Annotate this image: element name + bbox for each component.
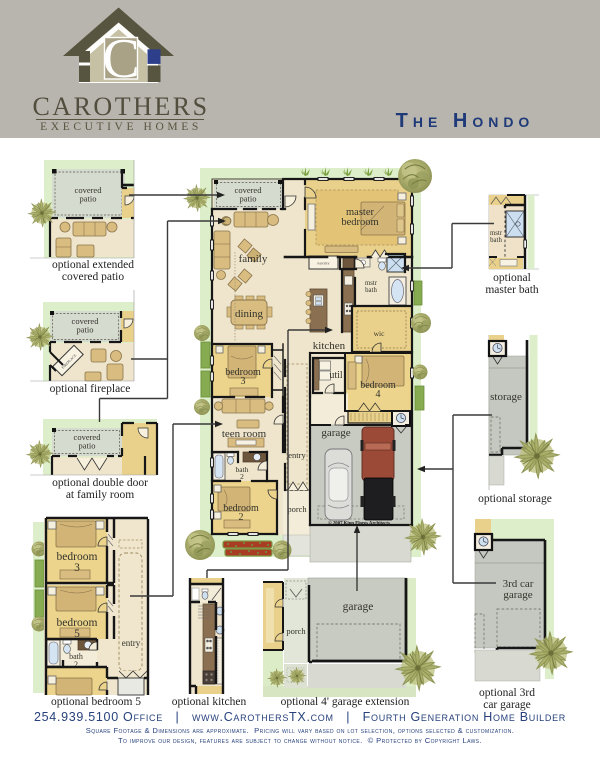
svg-text:at family room: at family room [66, 489, 134, 501]
svg-text:optional 4' garage extension: optional 4' garage extension [281, 696, 410, 708]
svg-text:kitchen: kitchen [313, 340, 346, 352]
svg-text:porch: porch [287, 504, 307, 514]
svg-text:storage: storage [490, 391, 522, 403]
svg-text:porch: porch [286, 626, 306, 636]
svg-text:util: util [329, 370, 343, 381]
svg-text:optional storage: optional storage [478, 493, 552, 505]
svg-text:optional: optional [493, 272, 531, 284]
svg-text:3: 3 [241, 376, 246, 387]
svg-text:mstr: mstr [490, 230, 503, 237]
svg-text:optional double door: optional double door [52, 477, 148, 489]
svg-text:family: family [239, 253, 268, 265]
svg-text:garage: garage [503, 589, 532, 601]
svg-text:bedroom: bedroom [341, 217, 378, 228]
svg-text:wic: wic [374, 329, 386, 338]
svg-text:3: 3 [74, 562, 80, 574]
svg-text:optional 3rd: optional 3rd [479, 687, 535, 699]
svg-text:patio: patio [77, 325, 94, 335]
svg-text:mstr: mstr [365, 280, 378, 287]
svg-text:optional extended: optional extended [52, 259, 134, 271]
svg-text:dining: dining [235, 308, 264, 320]
svg-text:master bath: master bath [485, 284, 539, 296]
svg-text:garage: garage [343, 601, 374, 613]
svg-text:2: 2 [239, 512, 244, 523]
svg-text:2: 2 [240, 472, 244, 481]
svg-text:entry: entry [122, 638, 141, 648]
svg-text:optional kitchen: optional kitchen [172, 696, 247, 708]
svg-text:optional bedroom 5: optional bedroom 5 [51, 696, 141, 708]
svg-text:entry: entry [288, 450, 306, 460]
svg-text:garage: garage [321, 427, 350, 439]
svg-text:PANTRY: PANTRY [317, 262, 330, 266]
svg-text:optional fireplace: optional fireplace [50, 383, 131, 395]
svg-text:teen room: teen room [222, 428, 267, 440]
svg-text:patio: patio [240, 194, 257, 204]
svg-text:patio: patio [80, 194, 97, 204]
svg-text:patio: patio [79, 441, 96, 451]
svg-text:covered patio: covered patio [62, 271, 125, 283]
svg-text:4: 4 [376, 389, 381, 400]
svg-text:bath: bath [490, 237, 502, 244]
svg-text:bath: bath [365, 287, 377, 294]
